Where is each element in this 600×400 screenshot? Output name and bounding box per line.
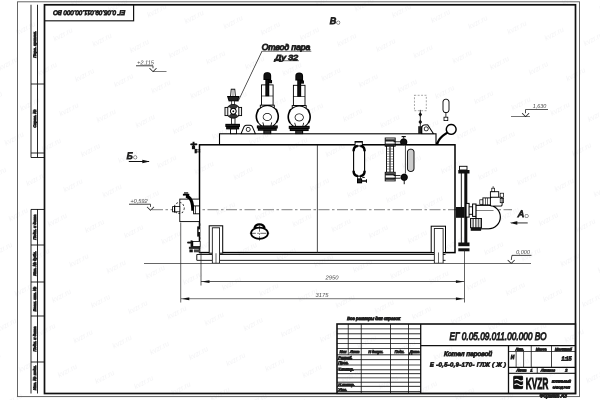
svg-text:Дата: Дата bbox=[409, 350, 420, 354]
svg-text:Подп. и дата: Подп. и дата bbox=[32, 326, 37, 352]
svg-text:И: И bbox=[511, 355, 515, 361]
svg-text:Лист: Лист bbox=[349, 350, 360, 354]
svg-text:Все размеры для справок: Все размеры для справок bbox=[347, 316, 401, 321]
svg-text:Подп.: Подп. bbox=[395, 350, 405, 354]
svg-text:Масштаб: Масштаб bbox=[555, 347, 573, 351]
svg-text:А: А bbox=[517, 209, 524, 219]
svg-text:Лист: Лист bbox=[515, 368, 527, 373]
svg-text:1: 1 bbox=[530, 368, 532, 373]
svg-text:2950: 2950 bbox=[325, 276, 340, 282]
svg-text:Взам. инв. №: Взам. инв. № bbox=[32, 286, 37, 311]
svg-text:Формат А3: Формат А3 bbox=[540, 394, 568, 400]
svg-text:ЕГ 0.05.09.011.00.000 ВО: ЕГ 0.05.09.011.00.000 ВО bbox=[450, 331, 547, 343]
svg-text:Котел паровой: Котел паровой bbox=[444, 350, 492, 358]
svg-text:Лит.: Лит. bbox=[515, 347, 524, 351]
svg-text:Инв. № подл.: Инв. № подл. bbox=[32, 365, 37, 390]
svg-text:Утв.: Утв. bbox=[338, 387, 347, 392]
svg-text:КОТЕЛЬНЫЙ: КОТЕЛЬНЫЙ bbox=[552, 379, 572, 383]
svg-text:Листов: Листов bbox=[540, 368, 555, 373]
svg-text:Масса: Масса bbox=[536, 347, 547, 351]
svg-text:Изм: Изм bbox=[340, 350, 347, 354]
svg-text:Н докум.: Н докум. bbox=[368, 350, 383, 354]
svg-text:Т.контр.: Т.контр. bbox=[338, 367, 354, 372]
svg-text:Инв. № дубл.: Инв. № дубл. bbox=[32, 251, 37, 276]
svg-text:Б: Б bbox=[127, 151, 133, 162]
svg-text:Пров.: Пров. bbox=[338, 360, 348, 365]
svg-text:3175: 3175 bbox=[316, 293, 330, 299]
svg-text:Е -0,5-0,9-170- ГЛЖ ( Ж ): Е -0,5-0,9-170- ГЛЖ ( Ж ) bbox=[430, 362, 506, 368]
svg-text:Перв. примен.: Перв. примен. bbox=[32, 31, 37, 58]
svg-text:ЕГ 0.05.09.011.00.000 ВО: ЕГ 0.05.09.011.00.000 ВО bbox=[53, 9, 126, 16]
svg-text:В: В bbox=[330, 16, 337, 27]
svg-text:Справ. №: Справ. № bbox=[32, 109, 37, 128]
svg-text:1:15: 1:15 bbox=[561, 356, 571, 362]
svg-text:Подп. и дата: Подп. и дата bbox=[32, 214, 37, 240]
svg-text:KVZR: KVZR bbox=[526, 376, 549, 393]
svg-text:ЗАВОД РЭП: ЗАВОД РЭП bbox=[553, 385, 571, 389]
